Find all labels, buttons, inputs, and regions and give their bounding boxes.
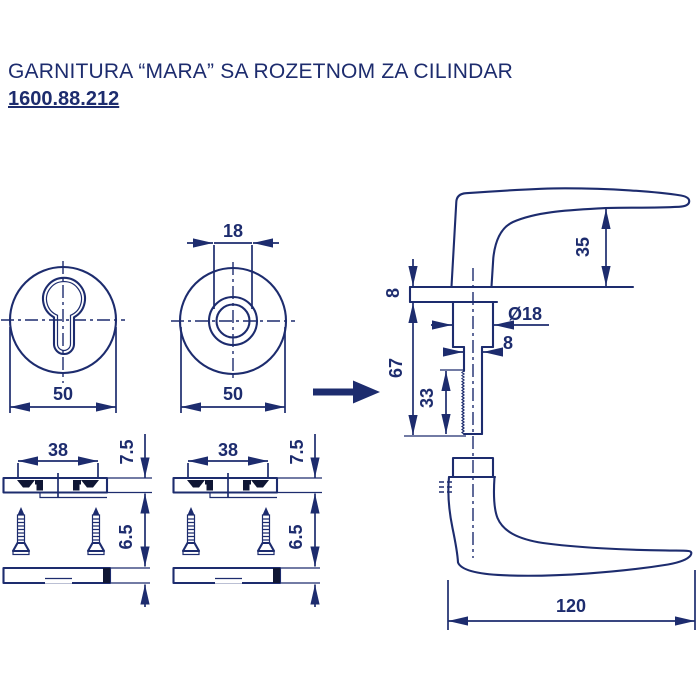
dim-base-left-thickness: 7.5	[117, 439, 137, 464]
dim-base-left-cover: 6.5	[116, 524, 136, 549]
drawing-page: GARNITURA “MARA” SA ROZETNOM ZA CILINDAR…	[0, 0, 700, 700]
dim-base-right-cover: 6.5	[286, 524, 306, 549]
dim-rosette-left-diameter: 50	[53, 384, 73, 404]
dim-spindle-width: 8	[503, 333, 513, 353]
rosette-base-side-left: 38 7.5 6.5	[4, 434, 153, 607]
dim-neck-diameter: Ø18	[508, 304, 542, 324]
dim-stem-length: 67	[386, 358, 406, 378]
dim-rosette-right-diameter: 50	[223, 384, 243, 404]
dim-base-left-spacing: 38	[48, 440, 68, 460]
dim-base-right-thickness: 7.5	[287, 439, 307, 464]
dim-rosette-hole: 18	[223, 221, 243, 241]
spline-serration	[462, 371, 464, 434]
rosette-front-cylinder: 50	[1, 261, 125, 413]
dim-spline-length: 33	[417, 388, 437, 408]
handle-bottom-view: 120	[439, 458, 695, 630]
rosette-front-hole: 18 50	[171, 221, 295, 413]
dim-base-right-spacing: 38	[218, 440, 238, 460]
lever-outline-bottom	[448, 477, 691, 576]
lever-outline	[452, 188, 690, 286]
handle-top-view: 35 8 67 Ø18 8 33	[383, 188, 689, 558]
dim-grip-offset: 35	[573, 237, 593, 257]
dim-rosette-thickness: 8	[383, 288, 403, 298]
technical-drawing: 50 18 50 38 7.5	[0, 0, 700, 700]
assembly-arrow-icon	[313, 381, 380, 404]
dim-handle-length: 120	[556, 596, 586, 616]
rosette-base-side-right: 38 7.5 6.5	[174, 434, 323, 607]
